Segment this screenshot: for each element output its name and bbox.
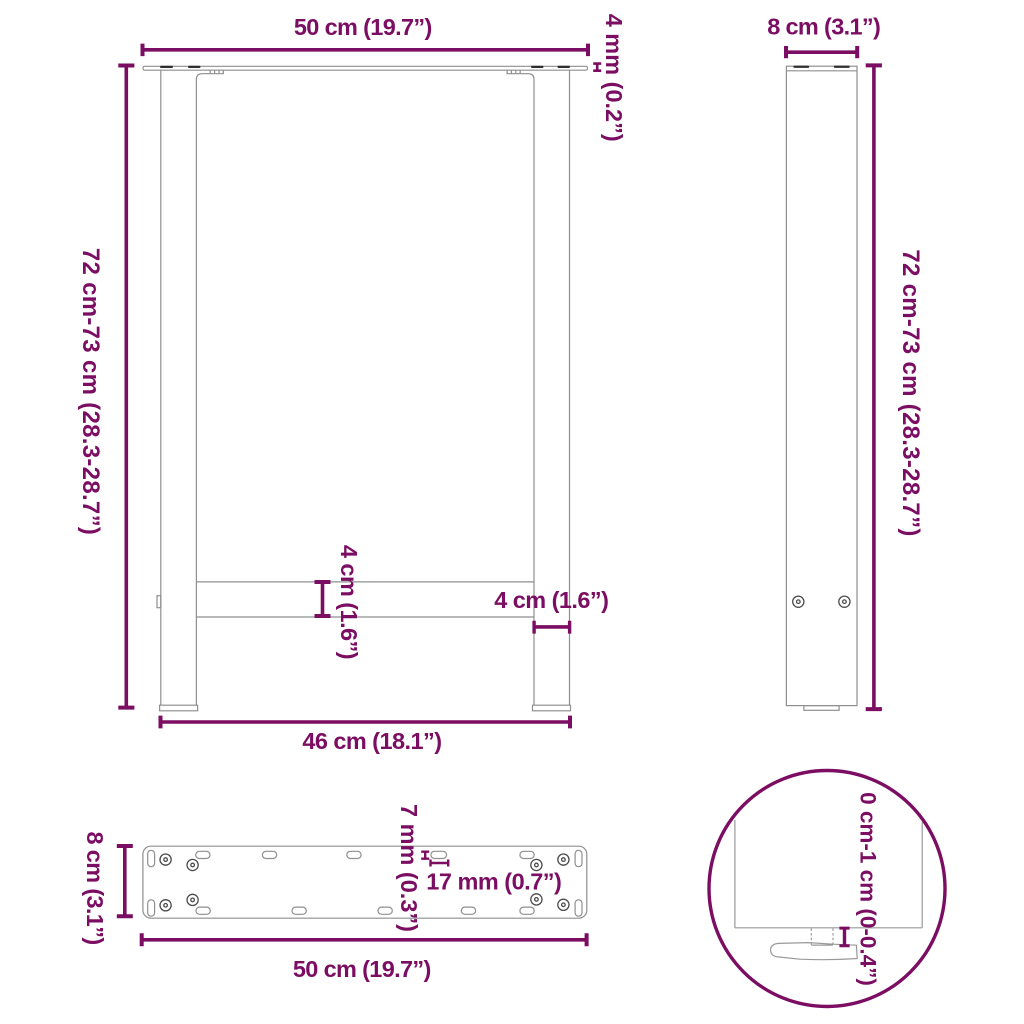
svg-text:8 cm (3.1”): 8 cm (3.1”) <box>82 831 108 944</box>
svg-text:7 mm (0.3”): 7 mm (0.3”) <box>396 804 422 932</box>
svg-text:46 cm (18.1”): 46 cm (18.1”) <box>302 728 441 754</box>
svg-text:4 cm (1.6”): 4 cm (1.6”) <box>494 587 608 613</box>
svg-text:72 cm-73 cm (28.3-28.7”): 72 cm-73 cm (28.3-28.7”) <box>77 248 104 535</box>
svg-text:17 mm (0.7”): 17 mm (0.7”) <box>426 869 561 895</box>
svg-text:4 mm (0.2”): 4 mm (0.2”) <box>601 14 627 142</box>
svg-text:4 cm (1.6”): 4 cm (1.6”) <box>336 545 362 659</box>
svg-text:50 cm (19.7”): 50 cm (19.7”) <box>294 14 432 40</box>
svg-text:72 cm-73 cm (28.3-28.7”): 72 cm-73 cm (28.3-28.7”) <box>897 249 924 536</box>
svg-text:50 cm (19.7”): 50 cm (19.7”) <box>293 956 431 982</box>
svg-text:8 cm (3.1”): 8 cm (3.1”) <box>767 14 880 40</box>
svg-text:0 cm-1 cm (0-0.4”): 0 cm-1 cm (0-0.4”) <box>856 792 881 986</box>
